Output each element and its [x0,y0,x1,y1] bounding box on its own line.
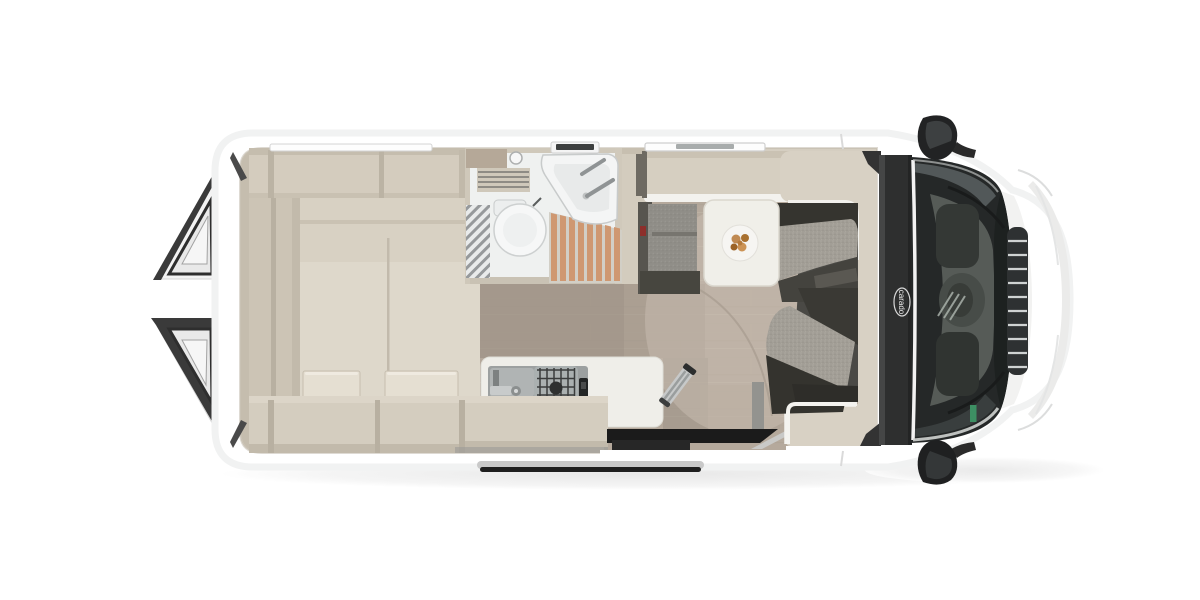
svg-text:carado: carado [897,290,906,315]
